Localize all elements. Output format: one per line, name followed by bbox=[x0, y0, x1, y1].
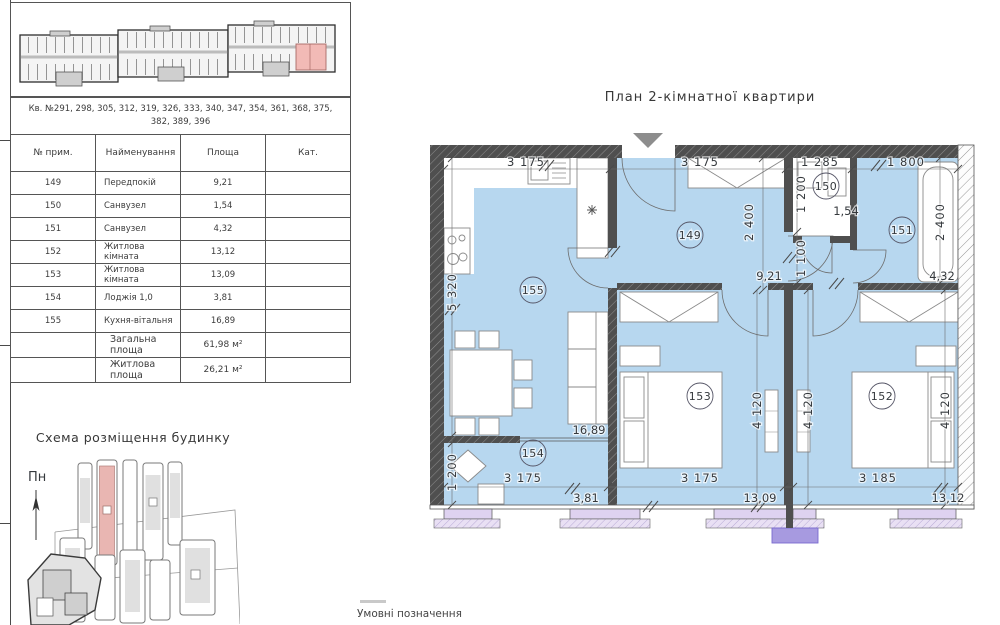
wardrobe bbox=[620, 292, 718, 322]
dim-bed2-width: 3 185 bbox=[859, 471, 897, 485]
room-cat bbox=[266, 264, 351, 287]
frame-tick bbox=[0, 345, 10, 346]
apartments-header: Кв. №291, 298, 305, 312, 319, 326, 333, … bbox=[11, 98, 351, 135]
dim-hall-width: 3 175 bbox=[681, 155, 719, 169]
site-complex bbox=[28, 554, 101, 625]
room-area: 13,12 bbox=[181, 241, 266, 264]
room-num: 153 bbox=[11, 264, 96, 287]
dim-kitchen-depth: 5 320 bbox=[445, 273, 459, 311]
table-row: 155 Кухня-вітальня 16,89 bbox=[11, 310, 351, 333]
area-bath: 4,32 bbox=[929, 269, 955, 283]
living-label: Житлова площа bbox=[96, 358, 181, 383]
room-number-loggia: 154 bbox=[522, 447, 545, 460]
dim-wc-depth: 1 200 bbox=[794, 175, 808, 213]
room-cat bbox=[266, 241, 351, 264]
area-hall: 9,21 bbox=[756, 269, 782, 283]
room-name: Санвузел bbox=[96, 218, 181, 241]
area-wc: 1,54 bbox=[833, 204, 859, 218]
frame-tick bbox=[0, 523, 10, 524]
room-area: 16,89 bbox=[181, 310, 266, 333]
room-num: 151 bbox=[11, 218, 96, 241]
room-cat bbox=[266, 218, 351, 241]
north-label: Пн bbox=[28, 470, 46, 485]
table-row: 153 Житлова кімната 13,09 bbox=[11, 264, 351, 287]
site-scheme-title: Схема розміщення будинку bbox=[33, 430, 233, 445]
room-cat bbox=[266, 195, 351, 218]
living-area-row: Житлова площа 26,21 м² bbox=[11, 358, 351, 383]
room-area: 1,54 bbox=[181, 195, 266, 218]
room-name: Передпокій bbox=[96, 172, 181, 195]
sofa bbox=[568, 312, 608, 424]
building-plan-thumbnail bbox=[10, 2, 351, 97]
site-plan: Пн bbox=[25, 448, 240, 625]
highlighted-apartment bbox=[296, 44, 326, 70]
room-area: 4,32 bbox=[181, 218, 266, 241]
room-num: 150 bbox=[11, 195, 96, 218]
room-schedule-table: Кв. №291, 298, 305, 312, 319, 326, 333, … bbox=[10, 97, 351, 383]
area-bed1: 13,09 bbox=[744, 491, 777, 505]
room-num: 154 bbox=[11, 287, 96, 310]
room-num: 149 bbox=[11, 172, 96, 195]
room-area: 13,09 bbox=[181, 264, 266, 287]
dim-wc-width: 1 285 bbox=[801, 155, 839, 169]
area-bed2: 13,12 bbox=[932, 491, 965, 505]
dim-loggia-width: 3 175 bbox=[504, 471, 542, 485]
room-schedule: Кв. №291, 298, 305, 312, 319, 326, 333, … bbox=[10, 97, 351, 383]
table-row: 152 Житлова кімната 13,12 bbox=[11, 241, 351, 264]
room-name: Лоджія 1,0 bbox=[96, 287, 181, 310]
total-label: Загальна площа bbox=[96, 333, 181, 358]
room-number-hall: 149 bbox=[679, 229, 702, 242]
dim-bed1-depth: 4 120 bbox=[750, 391, 764, 429]
room-number-bed2: 152 bbox=[871, 390, 894, 403]
table-row: 150 Санвузел 1,54 bbox=[11, 195, 351, 218]
dim-bed1-width: 3 175 bbox=[681, 471, 719, 485]
room-num: 152 bbox=[11, 241, 96, 264]
kitchen-cabinet bbox=[577, 158, 608, 258]
room-area: 3,81 bbox=[181, 287, 266, 310]
legend-label: Умовні позначення bbox=[357, 608, 462, 620]
table-row: 149 Передпокій 9,21 bbox=[11, 172, 351, 195]
wardrobe bbox=[860, 292, 958, 322]
dim-bed2-depth-left: 4 120 bbox=[801, 391, 815, 429]
dim-passage-depth: 1 100 bbox=[794, 239, 808, 277]
total-value: 61,98 м² bbox=[181, 333, 266, 358]
legend-swatch bbox=[360, 600, 386, 603]
room-number-bath: 151 bbox=[891, 224, 914, 237]
room-name: Кухня-вітальня bbox=[96, 310, 181, 333]
room-number-kitchen: 155 bbox=[522, 284, 545, 297]
north-arrow-icon bbox=[33, 490, 40, 540]
room-cat bbox=[266, 172, 351, 195]
col-header-area: Площа bbox=[181, 135, 266, 172]
table-row: 151 Санвузел 4,32 bbox=[11, 218, 351, 241]
highlighted-building bbox=[97, 460, 117, 565]
dresser bbox=[765, 390, 778, 452]
table-row: 154 Лоджія 1,0 3,81 bbox=[11, 287, 351, 310]
col-header-num: № прим. bbox=[11, 135, 96, 172]
dim-bed2-depth-right: 4 120 bbox=[938, 391, 952, 429]
area-loggia: 3,81 bbox=[573, 491, 599, 505]
room-name: Житлова кімната bbox=[96, 241, 181, 264]
living-value: 26,21 м² bbox=[181, 358, 266, 383]
site-buildings-upper bbox=[78, 460, 182, 565]
room-number-wc: 150 bbox=[815, 180, 838, 193]
windows bbox=[434, 505, 962, 543]
dim-loggia-depth: 1 200 bbox=[445, 453, 459, 491]
col-header-cat: Кат. bbox=[266, 135, 351, 172]
room-cat bbox=[266, 310, 351, 333]
dining-table bbox=[450, 350, 512, 416]
room-number-bed1: 153 bbox=[689, 390, 712, 403]
plan-title: План 2-кімнатної квартири bbox=[430, 90, 990, 105]
room-num: 155 bbox=[11, 310, 96, 333]
vent-icon bbox=[587, 205, 597, 215]
area-kitchen: 16,89 bbox=[573, 423, 606, 437]
room-cat bbox=[266, 287, 351, 310]
stove bbox=[444, 228, 470, 274]
col-header-name: Найменування bbox=[96, 135, 181, 172]
dim-hall-depth: 2 400 bbox=[742, 203, 756, 241]
entrance-marker-icon bbox=[633, 133, 663, 148]
apartment-floor-plan: 3 175 3 175 1 285 1 800 5 320 1 200 2 40… bbox=[425, 125, 995, 550]
total-area-row: Загальна площа 61,98 м² bbox=[11, 333, 351, 358]
room-name: Санвузел bbox=[96, 195, 181, 218]
frame-tick bbox=[0, 140, 10, 141]
dim-bath-width: 1 800 bbox=[887, 155, 925, 169]
dim-kitchen-width: 3 175 bbox=[507, 155, 545, 169]
room-name: Житлова кімната bbox=[96, 264, 181, 287]
balcony-marker bbox=[772, 528, 818, 543]
dim-bath-depth: 2 400 bbox=[933, 203, 947, 241]
drawing-sheet: Кв. №291, 298, 305, 312, 319, 326, 333, … bbox=[0, 0, 1000, 625]
room-area: 9,21 bbox=[181, 172, 266, 195]
